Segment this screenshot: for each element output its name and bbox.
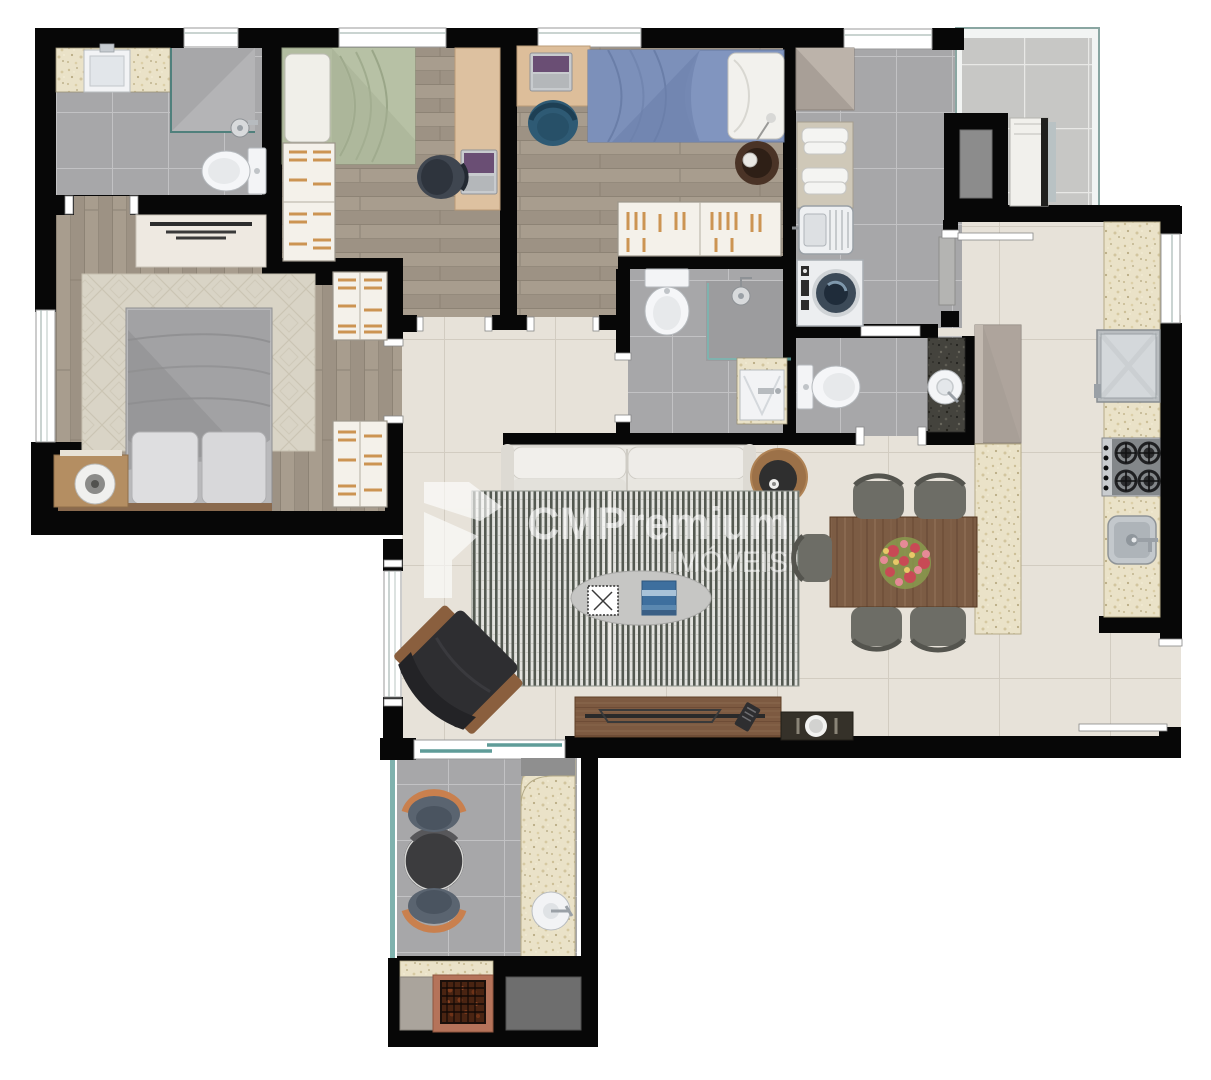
svg-text:IMÓVEIS: IMÓVEIS	[668, 546, 788, 579]
svg-text:CMPremium: CMPremium	[527, 498, 790, 549]
